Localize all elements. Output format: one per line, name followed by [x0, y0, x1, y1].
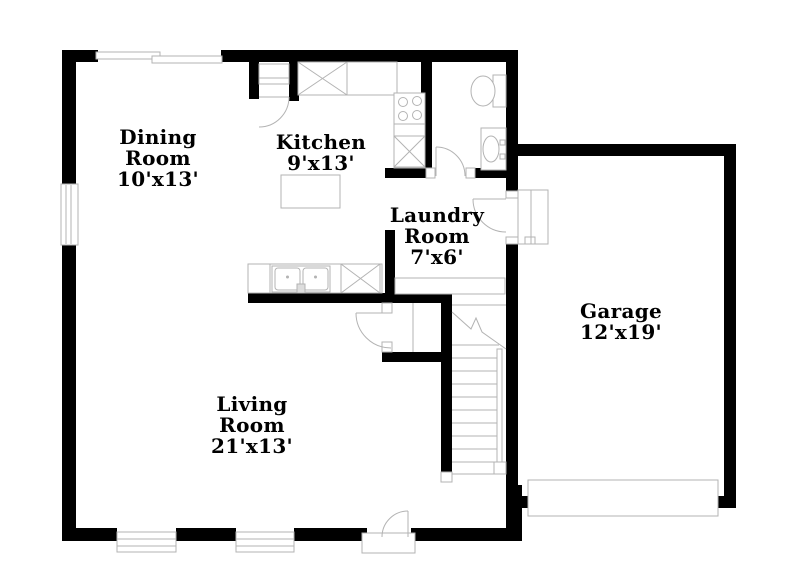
stair-rail — [497, 349, 502, 465]
vanity — [481, 128, 506, 170]
wall-right-house — [506, 50, 518, 508]
bath-door-sill-left — [426, 168, 435, 178]
wall-stair-left — [441, 293, 452, 482]
stairs — [452, 305, 506, 474]
wall-garage-top — [506, 144, 736, 156]
room-name-line: Room — [390, 226, 484, 247]
room-name-line: Garage — [580, 301, 662, 322]
dining-window-left — [96, 52, 160, 59]
stair-wall-end-sill — [441, 472, 452, 482]
room-label-kitchen: Kitchen 9'x13' — [276, 132, 366, 174]
room-label-garage: Garage 12'x19' — [580, 301, 662, 343]
laundry-fixtures — [395, 278, 505, 294]
closet-door-sill-top — [382, 303, 392, 313]
wall-living-bottom-1 — [62, 528, 117, 541]
kitchen-island — [281, 175, 340, 208]
living-window-left — [117, 532, 176, 552]
floor-plan-drawing — [0, 0, 800, 582]
room-dimensions: 7'x6' — [390, 247, 484, 268]
floor-plan: Dining Room 10'x13' Kitchen 9'x13' Laund… — [0, 0, 800, 582]
wall-left — [62, 50, 76, 541]
pantry-shelf — [259, 64, 289, 84]
room-name-line: Laundry — [390, 205, 484, 226]
washer-dryer-counter — [395, 278, 505, 294]
left-wall-window — [61, 184, 78, 245]
room-dimensions: 10'x13' — [117, 169, 199, 190]
garage-fixtures — [518, 190, 718, 516]
room-name-line: Dining — [117, 127, 199, 148]
garage-door-sill-bottom — [506, 237, 518, 244]
wall-closet-bottom — [382, 352, 452, 362]
stair-break-line — [452, 312, 506, 349]
dining-window-right — [152, 56, 222, 63]
pantry-door — [259, 97, 289, 127]
room-name-line: Kitchen — [276, 132, 366, 153]
room-name-line: Living — [211, 394, 293, 415]
stair-newel — [494, 462, 506, 474]
wall-living-bottom-3 — [294, 528, 368, 541]
bath-door-sill-right — [466, 168, 475, 178]
wall-top-main — [221, 50, 518, 62]
wall-garage-right — [724, 144, 736, 508]
room-name-line: Room — [117, 148, 199, 169]
room-dimensions: 12'x19' — [580, 322, 662, 343]
toilet-bowl — [471, 76, 495, 106]
room-label-dining: Dining Room 10'x13' — [117, 127, 199, 190]
wall-pantry-stub-left — [249, 62, 259, 99]
room-label-laundry: Laundry Room 7'x6' — [390, 205, 484, 268]
faucet — [297, 284, 305, 293]
wall-garage-bottom-right — [717, 496, 736, 508]
room-dimensions: 21'x13' — [211, 436, 293, 457]
room-name-line: Room — [211, 415, 293, 436]
bathroom-fixtures — [471, 75, 506, 170]
room-label-living: Living Room 21'x13' — [211, 394, 293, 457]
garage-door-sill-top — [506, 191, 518, 198]
garage-door — [528, 480, 718, 516]
wall-top-left — [62, 50, 98, 62]
living-window-right — [236, 532, 294, 552]
water-heater — [518, 190, 548, 244]
front-door-sill — [362, 533, 415, 553]
wall-living-bottom-4 — [410, 528, 522, 541]
wall-living-bottom-2 — [176, 528, 236, 541]
room-dimensions: 9'x13' — [276, 153, 366, 174]
